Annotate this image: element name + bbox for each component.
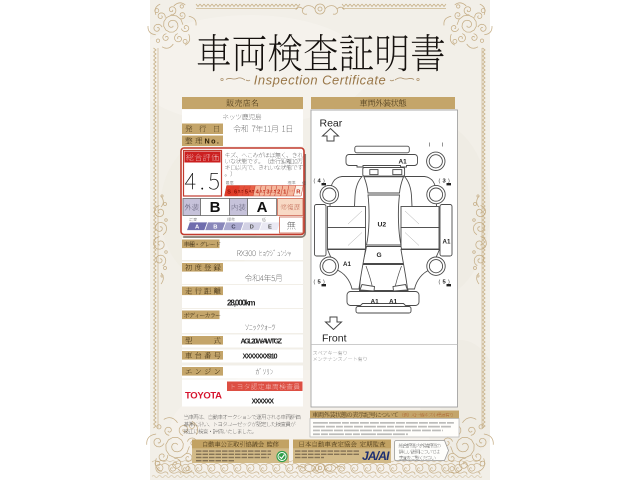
svg-text:TOYOTA: TOYOTA bbox=[185, 390, 222, 401]
svg-text:B: B bbox=[213, 225, 217, 231]
svg-text:AGL20W-AWTGZ: AGL20W-AWTGZ bbox=[241, 339, 283, 346]
svg-text:A1: A1 bbox=[343, 261, 351, 268]
svg-text:2: 2 bbox=[277, 189, 280, 195]
svg-text:B: B bbox=[210, 199, 221, 216]
svg-text:(: ( bbox=[314, 279, 316, 285]
svg-text:U2: U2 bbox=[378, 221, 387, 228]
svg-text:S: S bbox=[227, 189, 231, 195]
svg-text:A1: A1 bbox=[443, 238, 451, 245]
svg-text:Front: Front bbox=[322, 333, 347, 345]
svg-text:Inspection Certificate: Inspection Certificate bbox=[254, 73, 386, 88]
svg-text:D: D bbox=[250, 225, 254, 231]
svg-text:Rear: Rear bbox=[320, 118, 343, 130]
svg-text:(: ( bbox=[439, 178, 441, 184]
svg-text:No.: No. bbox=[205, 136, 221, 145]
svg-text:JA/AI: JA/AI bbox=[362, 449, 390, 463]
svg-text:XXXXXXX910: XXXXXXX910 bbox=[243, 354, 278, 361]
svg-text:(: ( bbox=[439, 279, 441, 285]
svg-text:A: A bbox=[257, 199, 268, 216]
svg-text:G: G bbox=[377, 252, 382, 259]
svg-text:A1: A1 bbox=[371, 298, 380, 305]
svg-text:A1: A1 bbox=[389, 298, 398, 305]
svg-text:XXXXXX: XXXXXX bbox=[252, 398, 275, 405]
svg-text:A1: A1 bbox=[399, 159, 408, 166]
svg-text:28,000km: 28,000km bbox=[227, 298, 256, 307]
svg-text:E: E bbox=[268, 225, 272, 231]
svg-text:(: ( bbox=[314, 178, 316, 184]
